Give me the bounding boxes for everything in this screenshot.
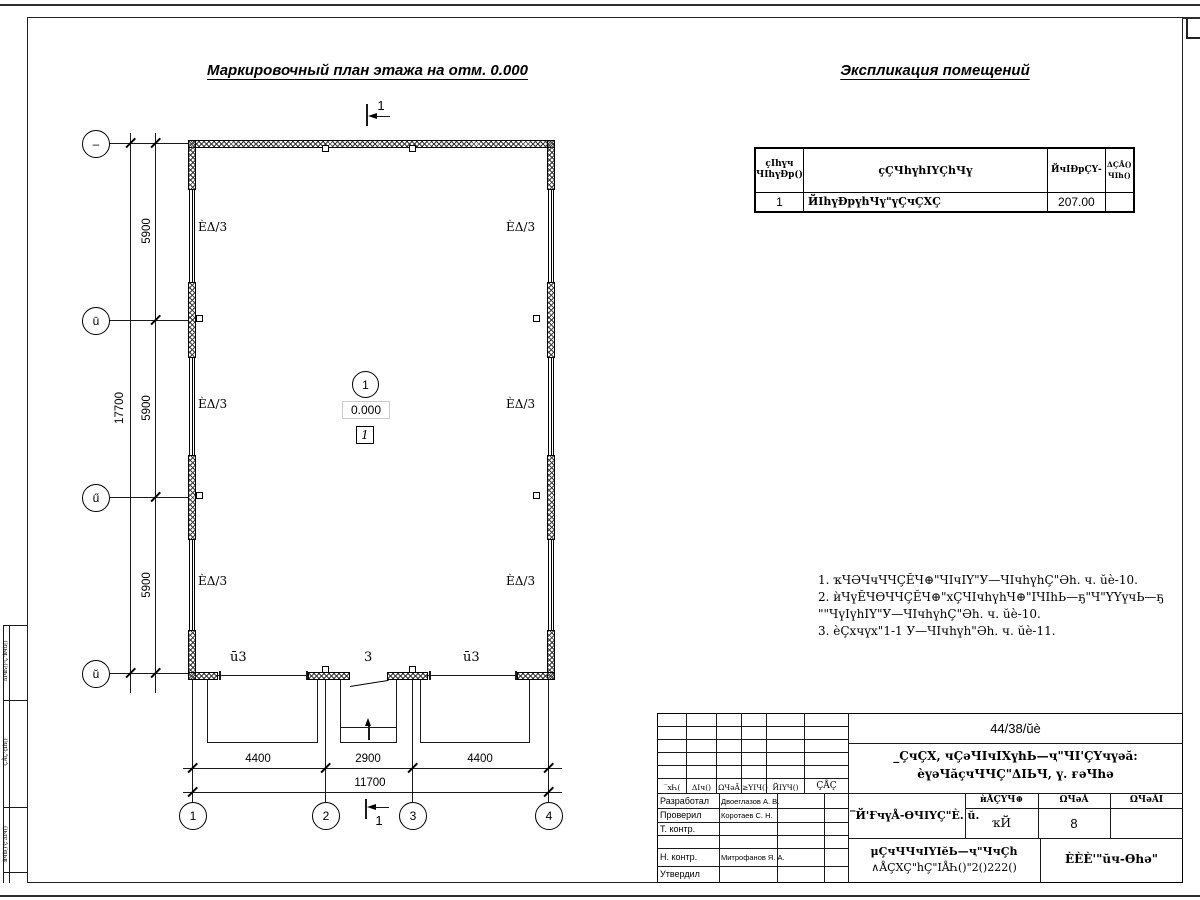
axis-circle-left: – bbox=[82, 130, 110, 158]
porch-edge bbox=[396, 680, 397, 742]
outer-border-bottom bbox=[0, 895, 1200, 897]
stamp-line bbox=[657, 752, 848, 753]
axis-number: 2 bbox=[323, 809, 330, 823]
opening-tick bbox=[219, 671, 221, 680]
axis-number: 3 bbox=[410, 809, 417, 823]
axis-leader bbox=[108, 143, 188, 144]
stage-header: ΩЧәĂI bbox=[1110, 795, 1183, 805]
rev-header: ‾хҺ( bbox=[658, 783, 686, 792]
wall-bottom-pier bbox=[387, 672, 428, 680]
axis-letter: ű bbox=[93, 491, 100, 505]
stamp-line bbox=[716, 713, 717, 793]
dim-bottom-1: 4400 bbox=[233, 753, 283, 765]
section-label: 1 bbox=[372, 813, 386, 828]
stamp-line bbox=[657, 835, 848, 836]
axis-square bbox=[196, 492, 203, 499]
axis-circle-bottom: 1 bbox=[179, 802, 207, 830]
axis-extension bbox=[548, 680, 549, 802]
person-name: Митрофанов Я. А. bbox=[721, 853, 785, 862]
rev-header: ҪÅҪ bbox=[805, 781, 848, 791]
window-symbol bbox=[189, 540, 195, 630]
room-number: 1 bbox=[362, 378, 369, 392]
room-number-circle: 1 bbox=[352, 371, 379, 398]
margin-cell-text: ҪÅҪ·ҫIһ() bbox=[3, 717, 9, 787]
drawing-sheet: ΔIчҺ()·Ҫ·ѝчŭ() ҪÅҪ·ҫIһ() ѝчŭ()·ҫ·ΔIч() М… bbox=[0, 0, 1200, 900]
table-row: 1 ЙIһүÐрүһЧү"үҪчҪХҪ 207.00 bbox=[755, 192, 1134, 212]
rev-header: ΩЧәĂ bbox=[717, 783, 741, 792]
axis-extension bbox=[412, 680, 413, 802]
axis-letter: ū bbox=[93, 314, 100, 328]
room-box-mark: 1 bbox=[356, 426, 374, 444]
note-line: ""ЧүIүһIY"У—ЧIчһүһҪ"Әһ. ч. ŭè-10. bbox=[818, 606, 1164, 623]
stamp-line bbox=[965, 808, 1183, 809]
window-symbol bbox=[548, 358, 554, 455]
axis-letter: ŭ bbox=[93, 667, 100, 681]
dim-bottom-total: 11700 bbox=[340, 777, 400, 789]
col-header-note: ΔҪÅ() ЧIһ() bbox=[1105, 148, 1134, 192]
axis-leader bbox=[108, 673, 188, 674]
axis-square bbox=[533, 492, 540, 499]
margin-cell-text: ΔIчҺ()·Ҫ·ѝчŭ() bbox=[3, 626, 9, 696]
note-line: 2. ѝЧүĔЧѲЧЧҪĔЧ⊕"хҪЧIчһүһЧ⊕"IЧIһЬ—ҕ"Ч"YҮү… bbox=[818, 589, 1164, 606]
axis-circle-left: ŭ bbox=[82, 660, 110, 688]
margin-line bbox=[3, 700, 27, 701]
wall-bottom-corner bbox=[188, 672, 218, 680]
dimension-line bbox=[130, 133, 131, 693]
opening-tick bbox=[306, 671, 308, 680]
axis-leader bbox=[108, 497, 188, 498]
dim-bottom-3: 4400 bbox=[455, 753, 505, 765]
porch-edge bbox=[207, 680, 208, 742]
opening-sill bbox=[218, 675, 308, 676]
gate-label: ū3 bbox=[463, 650, 480, 665]
col-header-name: ҫҪЧһүһIҮҪһЧү bbox=[803, 148, 1047, 192]
porch-edge bbox=[340, 680, 341, 742]
sheet-number: 8 bbox=[1038, 816, 1110, 831]
axis-number: 1 bbox=[190, 809, 197, 823]
stage-header: ΩЧәĂ bbox=[1038, 795, 1110, 805]
cell-note bbox=[1105, 192, 1134, 212]
role-label: Разработал bbox=[660, 796, 709, 806]
dimension-line bbox=[183, 768, 562, 769]
explication-table: ҫIһүч ЧIһүÐр() ҫҪЧһүһIҮҪһЧү ЙчIÐрҪҮ- ΔҪÅ… bbox=[754, 147, 1135, 213]
margin-line bbox=[3, 807, 27, 808]
stamp-line bbox=[848, 743, 1183, 744]
axis-square bbox=[322, 145, 329, 152]
stamp-line bbox=[657, 808, 848, 809]
stamp-line bbox=[686, 713, 687, 793]
corner-stamp-box bbox=[1186, 17, 1200, 39]
doc-type-line: μҪчЧЧчIҮIĕЬ—ҷ"ЧчҪһ bbox=[848, 845, 1040, 858]
role-label: Н. контр. bbox=[660, 852, 697, 862]
stage-header: ѝÅҪҮЧ⊕ bbox=[965, 795, 1038, 805]
axis-square bbox=[196, 315, 203, 322]
doc-number: 44/38/ŭè bbox=[848, 721, 1183, 736]
header-text: ҫҪЧһүһIҮҪһЧү bbox=[804, 165, 1047, 176]
wall-pier bbox=[188, 282, 196, 358]
axis-square bbox=[409, 145, 416, 152]
porch-edge bbox=[420, 742, 530, 743]
object-line: _ҪчҪХ, чҪәЧIчIХүһЬ—ҷ"ЧI'ҪҮчүәă: bbox=[848, 749, 1183, 763]
stamp-line bbox=[657, 793, 1183, 794]
stamp-line bbox=[824, 793, 825, 883]
wall-pier bbox=[188, 455, 196, 540]
porch-edge bbox=[207, 742, 318, 743]
stamp-line bbox=[657, 822, 848, 823]
axis-circle-bottom: 3 bbox=[399, 802, 427, 830]
window-symbol bbox=[189, 190, 195, 282]
cell-name: ЙIһүÐрүһЧү"үҪчҪХҪ bbox=[803, 192, 1047, 212]
axis-leader bbox=[108, 320, 188, 321]
margin-cell-text: ѝчŭ()·ҫ·ΔIч() bbox=[3, 809, 9, 879]
stamp-line bbox=[719, 793, 720, 883]
entry-arrow-line bbox=[368, 724, 370, 740]
window-label: ÈΔ/3 bbox=[506, 397, 535, 411]
rev-header: ЙIҮЧ() bbox=[767, 783, 804, 792]
wall-bottom-pier bbox=[308, 672, 350, 680]
window-symbol bbox=[548, 190, 554, 282]
object-line: èүәЧăҫчЧЧҪ"ΔIЬЧ, ү. ғәЧһә bbox=[848, 767, 1183, 781]
note-line: 1. ҡЧӘЧчЧЧҪĔЧ⊕"ЧIчIY"У—ЧIчһүһҪ"Әһ. ч. ŭè… bbox=[818, 572, 1164, 589]
axis-circle-bottom: 4 bbox=[535, 802, 563, 830]
window-label: ÈΔ/3 bbox=[198, 574, 227, 588]
porch-edge bbox=[340, 742, 397, 743]
entry-arrow-head bbox=[365, 718, 371, 726]
rev-header: ≥YIЧ() bbox=[742, 783, 766, 792]
window-label: ÈΔ/3 bbox=[198, 397, 227, 411]
window-symbol bbox=[548, 540, 554, 630]
organization-name: ÈÈÈ'"ŭч-Ѳһә" bbox=[1040, 852, 1183, 866]
stamp-line bbox=[766, 713, 767, 793]
col-header-area: ЙчIÐрҪҮ- bbox=[1047, 148, 1105, 192]
dim-bottom-2: 2900 bbox=[343, 753, 393, 765]
rev-header: ΔIч() bbox=[687, 783, 716, 792]
cell-number: 1 bbox=[755, 192, 803, 212]
person-name: Двоеглазов А. В. bbox=[721, 797, 779, 806]
header-text: ЧIһ() bbox=[1106, 170, 1133, 181]
axis-circle-left: ū bbox=[82, 307, 110, 335]
wall-pier bbox=[188, 140, 196, 190]
axis-number: 4 bbox=[546, 809, 553, 823]
col-header-number: ҫIһүч ЧIһүÐр() bbox=[755, 148, 803, 192]
stamp-line bbox=[657, 866, 848, 867]
doc-type-line: ∧ÅҪХҪ"һҪ"IÅҺ()"2()222() bbox=[848, 861, 1040, 874]
header-text: ҫIһүч bbox=[756, 159, 803, 170]
note-line: 3. èҪхчүх"1-1 У—ЧIчһүһ"Әһ. ч. ŭè-11. bbox=[818, 623, 1164, 640]
role-label: Проверил bbox=[660, 810, 701, 820]
role-label: Утвердил bbox=[660, 869, 700, 879]
plan-title: Маркировочный план этажа на отм. 0.000 bbox=[195, 62, 540, 79]
dimension-line bbox=[155, 133, 156, 693]
margin-line bbox=[9, 625, 10, 883]
stamp-line bbox=[657, 739, 848, 740]
wall-pier bbox=[547, 282, 555, 358]
dimension-line bbox=[183, 792, 562, 793]
stamp-line bbox=[657, 778, 848, 779]
axis-extension bbox=[325, 680, 326, 802]
porch-edge bbox=[529, 680, 530, 742]
section-arrow-line bbox=[375, 116, 390, 117]
door-label: 3 bbox=[364, 650, 372, 665]
window-label: ÈΔ/3 bbox=[198, 220, 227, 234]
dim-left-3: 5900 bbox=[141, 560, 153, 610]
header-text: ЙчIÐрҪҮ- bbox=[1048, 165, 1105, 176]
gate-label: ū3 bbox=[230, 650, 247, 665]
explication-title: Экспликация помещений bbox=[800, 62, 1070, 79]
wall-top bbox=[188, 140, 555, 148]
stage-value: ҡЙ bbox=[965, 816, 1038, 830]
role-label: Т. контр. bbox=[660, 824, 695, 834]
porch-edge bbox=[317, 680, 318, 742]
opening-tick bbox=[515, 671, 517, 680]
axis-square bbox=[533, 315, 540, 322]
stamp-line bbox=[777, 793, 778, 883]
window-symbol bbox=[189, 358, 195, 455]
sheet-title: ‾Й'ҒчүÅ-ѲЧIҮҪ"È. ŭ. bbox=[850, 809, 963, 822]
section-arrow-line bbox=[374, 807, 389, 808]
header-text: ЧIһүÐр() bbox=[756, 170, 803, 181]
axis-circle-left: ű bbox=[82, 484, 110, 512]
axis-extension bbox=[192, 680, 193, 802]
opening-sill bbox=[428, 675, 517, 676]
header-text: ΔҪÅ() bbox=[1106, 159, 1133, 170]
wall-pier bbox=[547, 140, 555, 190]
stamp-line bbox=[657, 848, 848, 849]
outer-border-top bbox=[0, 4, 1200, 6]
window-label: ÈΔ/3 bbox=[506, 574, 535, 588]
notes-block: 1. ҡЧӘЧчЧЧҪĔЧ⊕"ЧIчIY"У—ЧIчһүһҪ"Әһ. ч. ŭè… bbox=[818, 572, 1164, 640]
person-name: Коротаев С. Н. bbox=[721, 811, 773, 820]
porch-edge bbox=[420, 680, 421, 742]
section-label: 1 bbox=[374, 98, 388, 113]
cell-area: 207.00 bbox=[1047, 192, 1105, 212]
dim-left-1: 5900 bbox=[141, 206, 153, 256]
stamp-line bbox=[657, 726, 848, 727]
dim-left-2: 5900 bbox=[141, 383, 153, 433]
stamp-line bbox=[848, 838, 1183, 839]
stamp-line bbox=[657, 765, 848, 766]
opening-tick bbox=[429, 671, 431, 680]
wall-bottom-corner bbox=[517, 672, 555, 680]
elevation-mark: 0.000 bbox=[342, 401, 390, 419]
axis-circle-bottom: 2 bbox=[312, 802, 340, 830]
wall-pier bbox=[547, 455, 555, 540]
window-label: ÈΔ/3 bbox=[506, 220, 535, 234]
axis-square bbox=[409, 666, 416, 673]
dim-left-total: 17700 bbox=[114, 380, 126, 436]
axis-square bbox=[322, 666, 329, 673]
axis-letter: – bbox=[93, 137, 100, 151]
stamp-line bbox=[741, 713, 742, 793]
